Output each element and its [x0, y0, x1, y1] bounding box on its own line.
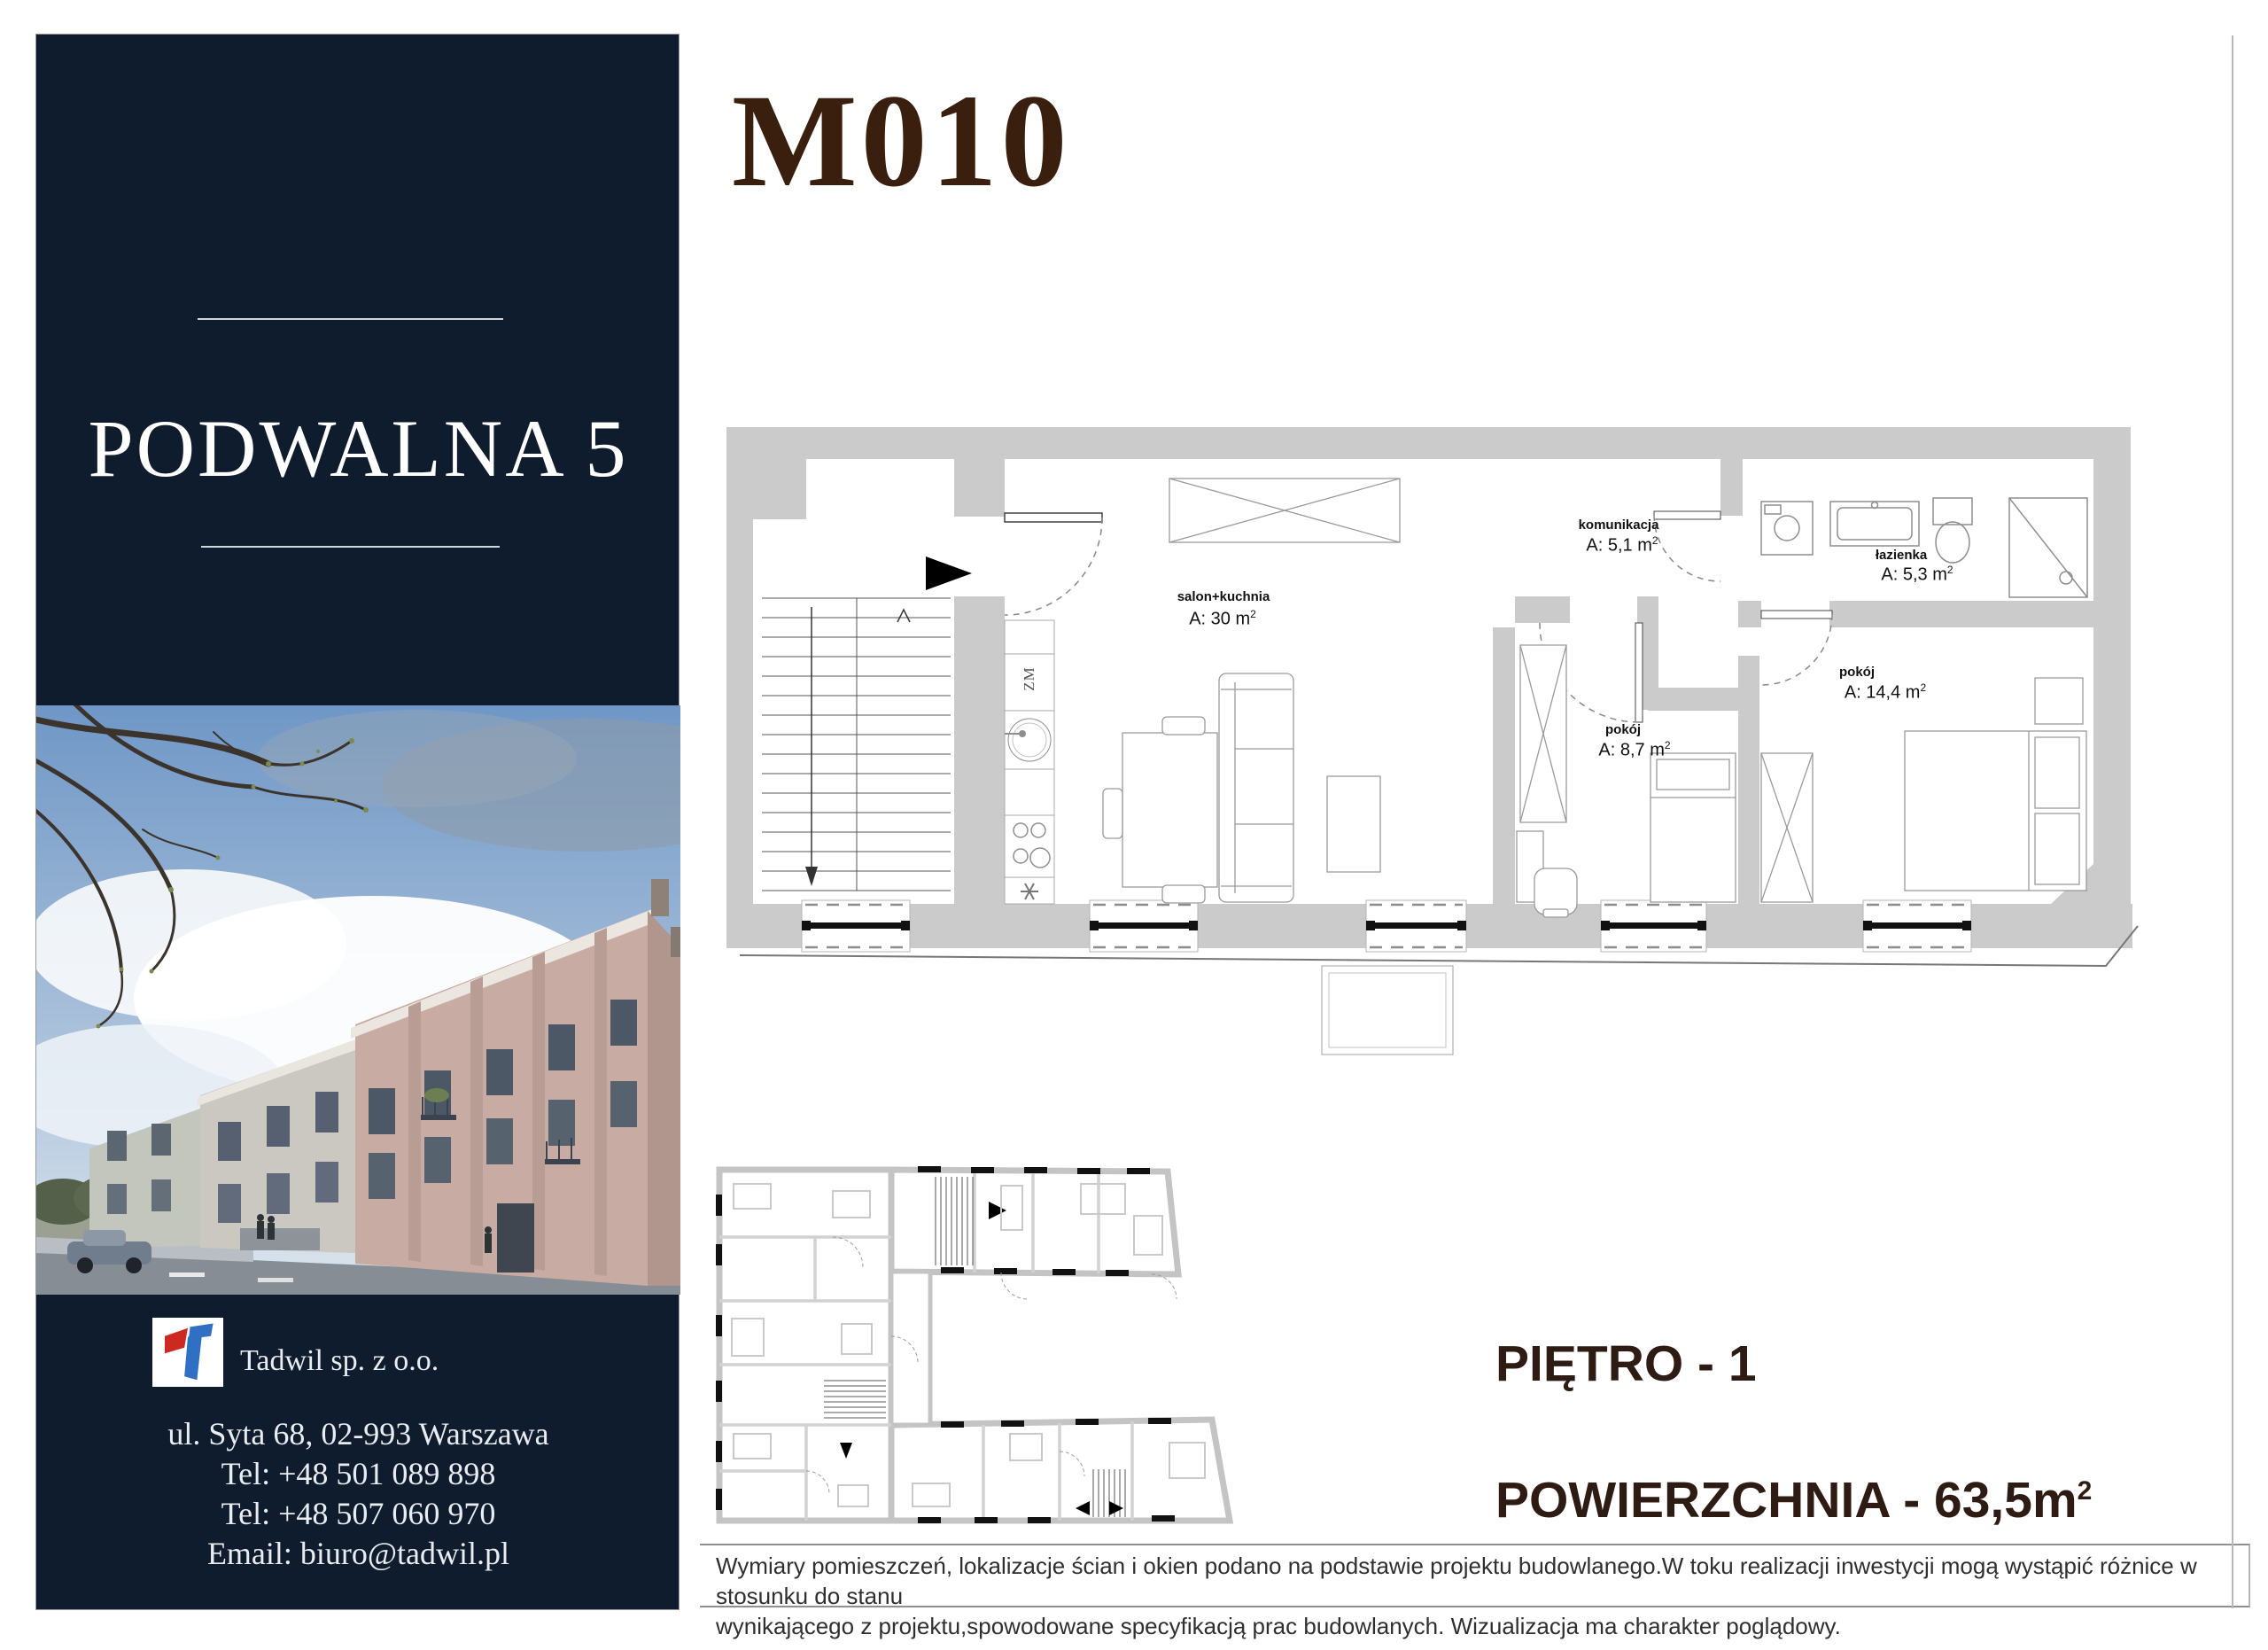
- bedroom-door-leaf: [1761, 611, 1832, 619]
- tadwil-logo: [152, 1318, 223, 1387]
- tadwil-logo-icon: [152, 1318, 223, 1387]
- room-label-pokoj-large: pokój: [1839, 665, 1875, 680]
- room-area-salon-sup: 2: [1250, 608, 1256, 620]
- room-area-pokoj-large-value: A: 14,4 m: [1845, 683, 1921, 703]
- area-label-value: POWIERZCHNIA - 63,5m: [1495, 1472, 2078, 1529]
- page-frame-right-rule: [2232, 35, 2233, 1608]
- company-phone-1: Tel: +48 501 089 898: [36, 1455, 680, 1492]
- floor-label: PIĘTRO - 1: [1495, 1335, 1757, 1393]
- stair-arrow-up-icon: [897, 610, 910, 622]
- room-area-lazienka-value: A: 5,3 m: [1881, 565, 1946, 585]
- main-floor-plan: salon+kuchnia A: 30 m2 komunikacja A: 5,…: [726, 408, 2197, 1161]
- room-area-pokoj-small-value: A: 8,7 m: [1598, 741, 1664, 760]
- main-floor-plan-drawing: [726, 408, 2197, 1161]
- light-shaft: [1322, 966, 1453, 1055]
- disclaimer-line-1: Wymiary pomieszczeń, lokalizacje ścian i…: [716, 1551, 2249, 1611]
- room-area-pokoj-large: A: 14,4 m2: [1845, 681, 1926, 704]
- entrance-arrow-icon: [926, 556, 972, 590]
- appliance-label-zm: ZM: [1021, 666, 1038, 691]
- room-area-salon-value: A: 30 m: [1189, 610, 1250, 629]
- large-bedroom-furniture: [1761, 678, 2086, 902]
- room-area-komunikacja: A: 5,1 m2: [1586, 534, 1658, 556]
- overview-floor-plan-drawing: [709, 1159, 1240, 1531]
- disclaimer-line-2: wynikającego z projektu,spowodowane spec…: [716, 1611, 2249, 1641]
- entry-door-swing: [1005, 518, 1102, 615]
- room-area-pokoj-small-sup: 2: [1665, 739, 1671, 751]
- company-name: Tadwil sp. z o.o.: [240, 1344, 648, 1378]
- bedroom-door-swing: [1761, 614, 1832, 685]
- footer: Wymiary pomieszczeń, lokalizacje ścian i…: [700, 1544, 2250, 1607]
- bathroom-door-leaf: [1654, 511, 1720, 519]
- stair-arrow-down-icon: [805, 867, 818, 886]
- room-area-komunikacja-sup: 2: [1652, 534, 1658, 547]
- title-rule-top: [198, 318, 503, 320]
- company-address: ul. Syta 68, 02-993 Warszawa: [36, 1415, 680, 1452]
- room-area-pokoj-small: A: 8,7 m2: [1598, 739, 1670, 761]
- room-door-leaf: [1635, 623, 1643, 722]
- bathroom-door-swing: [1654, 515, 1720, 581]
- sidebar: PODWALNA 5: [35, 34, 680, 1610]
- living-room-furniture: [1103, 479, 1400, 903]
- room-area-lazienka-sup: 2: [1947, 564, 1953, 576]
- room-area-lazienka: A: 5,3 m2: [1881, 564, 1953, 586]
- area-label-sup: 2: [2078, 1476, 2093, 1506]
- room-area-komunikacja-value: A: 5,1 m: [1586, 536, 1651, 556]
- room-area-pokoj-large-sup: 2: [1920, 681, 1926, 694]
- entry-door-leaf: [1005, 513, 1102, 522]
- building-photo: [36, 705, 680, 1295]
- title-rule-bottom: [201, 546, 500, 548]
- project-title: PODWALNA 5: [36, 401, 680, 495]
- overview-floor-plan: [709, 1159, 1240, 1531]
- unit-title: M010: [732, 74, 1071, 207]
- kitchen-counter: [1005, 620, 1054, 904]
- room-area-salon: A: 30 m2: [1189, 608, 1256, 630]
- company-phone-2: Tel: +48 507 060 970: [36, 1495, 680, 1532]
- building-photo-art: [36, 705, 680, 1295]
- staircase: [762, 598, 951, 891]
- small-bedroom-furniture: [1517, 645, 1736, 917]
- room-label-lazienka: łazienka: [1876, 548, 1927, 563]
- room-label-pokoj-small: pokój: [1605, 722, 1641, 737]
- brochure-page: PODWALNA 5: [0, 0, 2268, 1650]
- room-label-komunikacja: komunikacja: [1579, 518, 1659, 533]
- room-label-salon: salon+kuchnia: [1177, 589, 1270, 604]
- area-label: POWIERZCHNIA - 63,5m2: [1495, 1471, 2092, 1529]
- company-email: Email: biuro@tadwil.pl: [36, 1535, 680, 1572]
- building-gable: [648, 911, 680, 1286]
